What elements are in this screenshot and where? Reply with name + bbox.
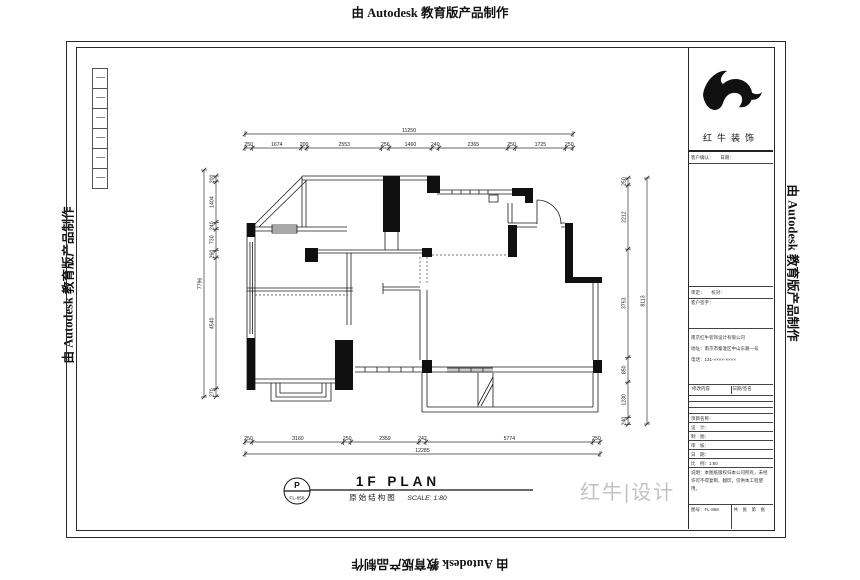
svg-text:250: 250 — [592, 436, 601, 442]
svg-text:2212: 2212 — [622, 211, 628, 223]
svg-text:240: 240 — [431, 142, 440, 148]
svg-text:250: 250 — [244, 142, 253, 148]
svg-text:200: 200 — [210, 174, 216, 183]
floorplan-canvas: 2501674200255325614602402365250172525011… — [0, 0, 860, 580]
svg-text:250: 250 — [622, 177, 628, 186]
svg-text:8113: 8113 — [641, 295, 647, 306]
plan-scale-label: SCALE: 1:80 — [407, 495, 447, 502]
entry-door-arc — [537, 200, 561, 224]
plan-title-cn: 原始结构图 — [349, 492, 397, 502]
dashed-lines-layer — [255, 255, 508, 295]
svg-text:5774: 5774 — [504, 436, 516, 442]
dimensions-layer: 2501674200255325614602402365250172525011… — [198, 128, 651, 457]
svg-text:12285: 12285 — [415, 448, 430, 454]
svg-text:242: 242 — [418, 436, 427, 442]
svg-text:730: 730 — [210, 235, 216, 244]
svg-text:2365: 2365 — [468, 142, 480, 148]
title-underline — [284, 490, 533, 491]
svg-text:250: 250 — [244, 436, 253, 442]
svg-text:1230: 1230 — [622, 394, 628, 406]
svg-text:250: 250 — [507, 142, 516, 148]
piers-layer — [247, 176, 602, 390]
svg-text:3160: 3160 — [292, 436, 304, 442]
title-tag-code: FL-858 — [289, 496, 305, 502]
svg-text:7796: 7796 — [198, 278, 204, 290]
svg-text:256: 256 — [381, 142, 390, 148]
plan-title-en: 1F PLAN — [356, 474, 440, 489]
title-tag-letter: P — [294, 480, 300, 490]
drawing-sheet: 由 Autodesk 教育版产品制作 由 Autodesk 教育版产品制作 由 … — [0, 0, 860, 580]
svg-text:4540: 4540 — [210, 317, 216, 329]
svg-text:270: 270 — [210, 388, 216, 397]
svg-text:11250: 11250 — [402, 128, 416, 134]
svg-text:260: 260 — [210, 250, 216, 259]
svg-text:1674: 1674 — [271, 142, 283, 148]
svg-text:2553: 2553 — [339, 142, 351, 148]
svg-text:240: 240 — [622, 417, 628, 426]
sill-band — [447, 368, 493, 372]
svg-text:850: 850 — [622, 365, 628, 374]
svg-text:250: 250 — [565, 142, 574, 148]
svg-text:240: 240 — [210, 221, 216, 230]
svg-text:1460: 1460 — [405, 142, 417, 148]
svg-text:3753: 3753 — [622, 297, 628, 309]
svg-text:1404: 1404 — [210, 196, 216, 208]
svg-text:250: 250 — [343, 436, 352, 442]
svg-text:200: 200 — [300, 142, 309, 148]
svg-text:2359: 2359 — [379, 436, 391, 442]
svg-text:1725: 1725 — [535, 142, 547, 148]
walls-layer — [247, 176, 598, 412]
sheet-title-group: P FL-858 1F PLAN 原始结构图 SCALE: 1:80 — [284, 474, 533, 504]
